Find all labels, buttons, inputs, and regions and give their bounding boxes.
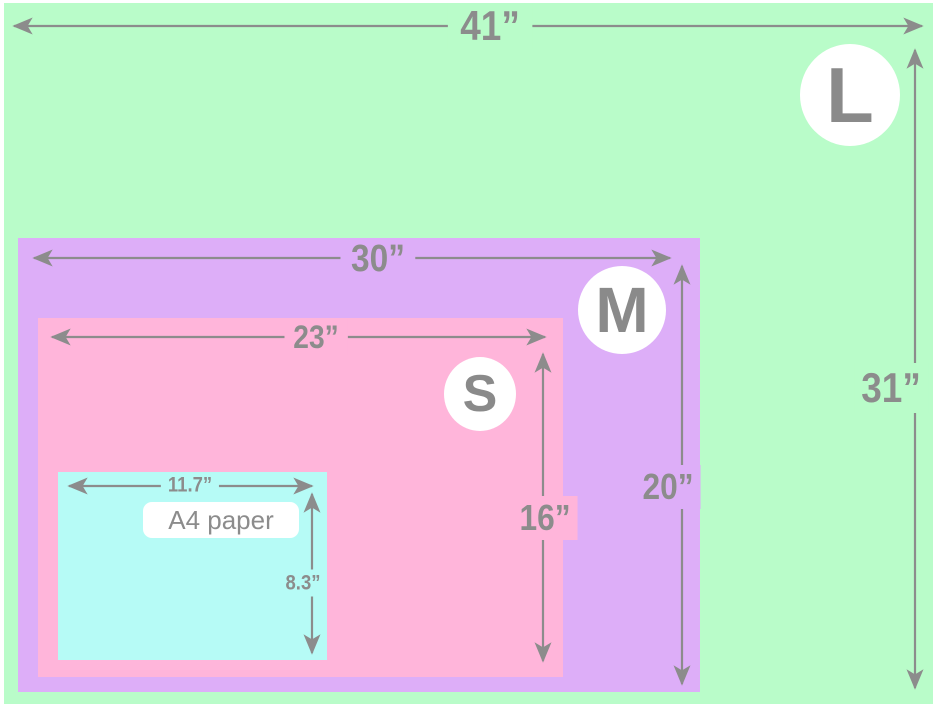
dimension-arrows [0,0,938,712]
dim-label-a4-height: 8.3” [280,570,325,597]
size-s-badge-letter: S [463,364,498,424]
dim-label-s-height: 16” [512,496,577,540]
size-m-badge: M [578,266,666,354]
dim-label-m-height: 20” [635,465,700,509]
size-comparison-diagram: 41” 31” 30” 20” 23” 16” 11.7” 8.3” L M S… [0,0,938,712]
size-m-badge-letter: M [595,273,648,347]
a4-paper-label: A4 paper [143,502,299,538]
dim-label-s-width: 23” [284,319,347,355]
dim-label-m-width: 30” [340,238,415,280]
a4-paper-label-text: A4 paper [168,505,274,536]
dim-label-l-width: 41” [448,3,532,49]
dim-label-l-height: 31” [854,363,928,413]
size-s-badge: S [444,357,516,431]
size-l-badge-letter: L [826,50,874,141]
size-l-badge: L [800,44,900,146]
dim-label-a4-width: 11.7” [161,473,219,498]
